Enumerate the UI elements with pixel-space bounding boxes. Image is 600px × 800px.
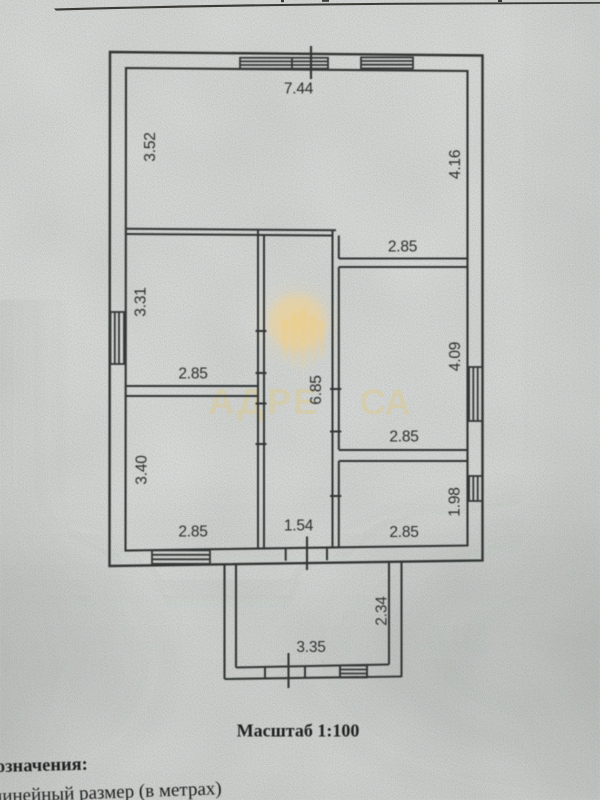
svg-text:2.85: 2.85	[388, 239, 417, 256]
svg-text:4.09: 4.09	[447, 342, 464, 371]
svg-text:С: С	[359, 382, 385, 423]
svg-text:4.16: 4.16	[447, 150, 464, 179]
svg-text:7.44: 7.44	[284, 81, 314, 98]
svg-text:3.31: 3.31	[132, 287, 149, 316]
svg-text:2.85: 2.85	[389, 429, 418, 446]
svg-text:6.85: 6.85	[308, 375, 325, 404]
svg-text:2.85: 2.85	[178, 366, 207, 383]
svg-text:А: А	[208, 381, 234, 422]
svg-text:Р: Р	[267, 381, 291, 422]
svg-text:Д: Д	[237, 381, 263, 422]
svg-text:3.52: 3.52	[142, 132, 159, 161]
svg-text:А: А	[384, 382, 410, 423]
